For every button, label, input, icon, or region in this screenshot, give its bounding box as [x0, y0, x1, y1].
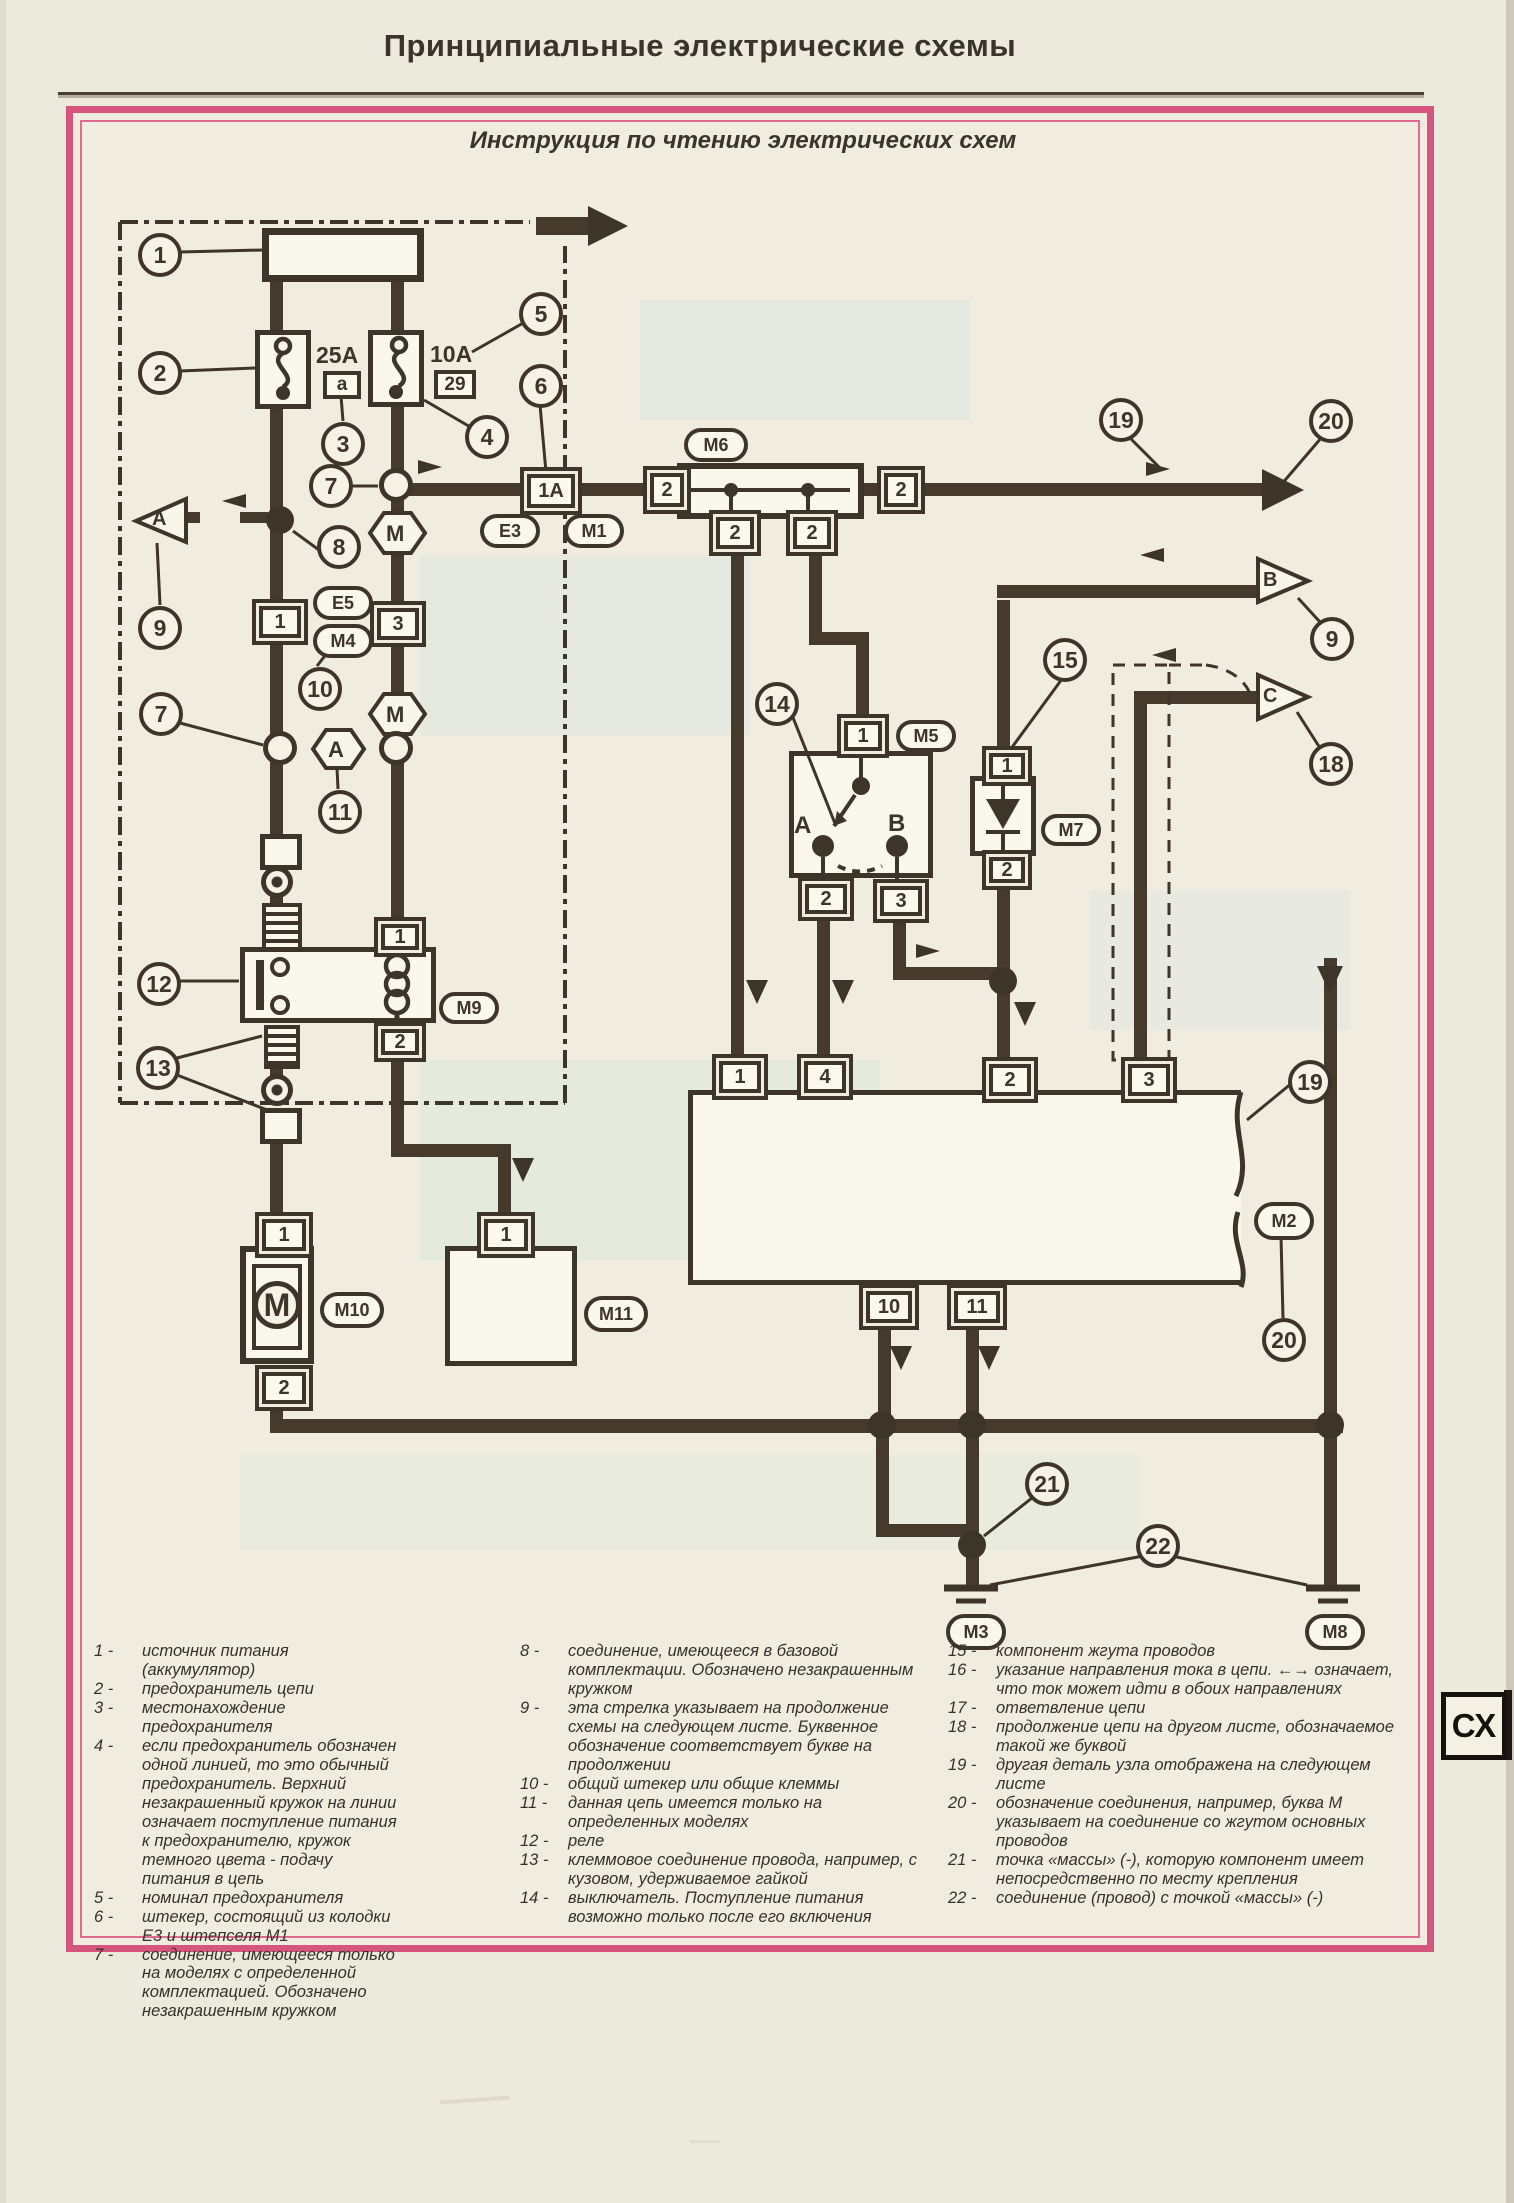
section-tab: СХ [1441, 1692, 1507, 1760]
legend-item: 7 - соединение, имеющееся только на моде… [94, 1946, 404, 2022]
legend-item-number: 5 - [94, 1889, 142, 1908]
legend-item: 15 - компонент жгута проводов [948, 1642, 1400, 1661]
legend-item-text: соединение (провод) с точкой «массы» (-) [996, 1889, 1400, 1908]
legend-item-number: 1 - [94, 1642, 142, 1680]
option-connection-ring [379, 468, 413, 502]
callout-6: 6 [519, 364, 563, 408]
torn-edge [1235, 1092, 1243, 1287]
legend-item-text: соединение, имеющееся в базовой комплект… [568, 1642, 932, 1699]
callout-8: 8 [317, 525, 361, 569]
connector-pin: 1 [262, 1219, 306, 1251]
callout-14: 14 [755, 682, 799, 726]
legend-item: 12 - реле [520, 1832, 932, 1851]
ground-icon [944, 1588, 1360, 1601]
connector-pin: 2 [989, 1064, 1031, 1096]
connector-pin: 1 [381, 924, 419, 950]
fuse-rating-label: 25A [316, 342, 358, 369]
legend-item: 8 - соединение, имеющееся в базовой комп… [520, 1642, 932, 1699]
connector-pin: 3 [1128, 1064, 1170, 1096]
connector-pin: 2 [989, 857, 1025, 883]
section-tab-bar [1504, 1690, 1512, 1760]
terminal-square [260, 834, 302, 870]
hexagon-letter: A [328, 737, 344, 763]
legend-item: 17 - ответвление цепи [948, 1699, 1400, 1718]
flow-arrow-down-icon [1317, 966, 1343, 994]
legend-item-text: эта стрелка указывает на продолжение схе… [568, 1699, 932, 1775]
continuation-letter: B [1263, 569, 1277, 592]
legend-item-text: другая деталь узла отображена на следующ… [996, 1756, 1400, 1794]
connector-label-m10: M10 [320, 1292, 384, 1328]
legend-item-text: ответвление цепи [996, 1699, 1400, 1718]
connector-label-m9: M9 [439, 992, 499, 1024]
legend-item: 9 - эта стрелка указывает на продолжение… [520, 1699, 932, 1775]
callout-4: 4 [465, 415, 509, 459]
legend-item-number: 18 - [948, 1718, 996, 1756]
flow-arrow-left-icon [1140, 548, 1164, 562]
switch-contact-letter: B [888, 810, 905, 838]
flow-arrow-down-icon [746, 980, 768, 1004]
connector-pin: 2 [381, 1029, 419, 1055]
connector-label-e3: E3 [480, 514, 540, 548]
legend-column-2: 8 - соединение, имеющееся в базовой комп… [520, 1642, 932, 1927]
legend-item-number: 21 - [948, 1851, 996, 1889]
legend-item-number: 8 - [520, 1642, 568, 1699]
terminal-square [260, 1108, 302, 1144]
legend-item-number: 4 - [94, 1737, 142, 1889]
connector-pin: 4 [804, 1061, 846, 1093]
legend-item-text: указание направления тока в цепи. ←→ озн… [996, 1661, 1400, 1699]
legend-item-text: штекер, состоящий из колодки Е3 и штепсе… [142, 1908, 404, 1946]
legend-item-number: 17 - [948, 1699, 996, 1718]
legend-item: 6 - штекер, состоящий из колодки Е3 и шт… [94, 1908, 404, 1946]
callout-19b: 19 [1288, 1060, 1332, 1104]
flow-arrow-down-icon [1014, 1002, 1036, 1026]
flow-arrow-right-icon [1146, 462, 1170, 476]
junction-dot [958, 1411, 986, 1439]
legend-item: 18 - продолжение цепи на другом листе, о… [948, 1718, 1400, 1756]
connector-pin: 2 [884, 473, 918, 507]
callout-9b: 9 [1310, 617, 1354, 661]
option-connection-ring [379, 731, 413, 765]
junction-dot [868, 1411, 896, 1439]
legend-item: 5 - номинал предохранителя [94, 1889, 404, 1908]
legend-item-text: предохранитель цепи [142, 1680, 404, 1699]
flow-arrow-right-icon [916, 944, 940, 958]
callout-2: 2 [138, 351, 182, 395]
callout-9: 9 [138, 606, 182, 650]
legend-item-text: обозначение соединения, например, буква … [996, 1794, 1400, 1851]
flow-arrow-down-icon [512, 1158, 534, 1182]
m6-internals [684, 483, 850, 515]
flow-arrow-right-icon [418, 460, 442, 474]
legend-item-number: 16 - [948, 1661, 996, 1699]
connector-pin: 1 [484, 1219, 528, 1251]
legend-item: 10 - общий штекер или общие клеммы [520, 1775, 932, 1794]
legend-item: 22 - соединение (провод) с точкой «массы… [948, 1889, 1400, 1908]
legend-item-text: компонент жгута проводов [996, 1642, 1400, 1661]
flow-arrow-left-icon [222, 494, 246, 508]
legend-item: 3 - местонахождение предохранителя [94, 1699, 404, 1737]
legend-item: 2 - предохранитель цепи [94, 1680, 404, 1699]
legend-item-number: 6 - [94, 1908, 142, 1946]
connector-pin: 1 [844, 721, 882, 751]
hexagon-letter: M [386, 702, 404, 728]
connector-label-m7: M7 [1041, 814, 1101, 846]
connector-pin: 2 [805, 884, 847, 914]
connector-label-m2: M2 [1254, 1202, 1314, 1240]
connector-label-e5: E5 [313, 586, 373, 620]
clamp-terminal [264, 1025, 300, 1069]
fuse-rating-label: 10A [430, 341, 472, 368]
legend-item: 4 - если предохранитель обозначен одной … [94, 1737, 404, 1889]
continuation-arrow-right-icon [588, 206, 628, 246]
dashed-continuation-box [1113, 665, 1252, 1060]
legend-item-number: 19 - [948, 1756, 996, 1794]
junction-dot-base [266, 506, 294, 534]
callout-20: 20 [1309, 399, 1353, 443]
legend-item-text: реле [568, 1832, 932, 1851]
legend-item-text: точка «массы» (-), которую компонент име… [996, 1851, 1400, 1889]
callout-20b: 20 [1262, 1318, 1306, 1362]
legend-item: 14 - выключатель. Поступление питания во… [520, 1889, 932, 1927]
callout-19: 19 [1099, 398, 1143, 442]
callout-12: 12 [137, 962, 181, 1006]
legend-item-text: клеммовое соединение провода, например, … [568, 1851, 932, 1889]
connector-pin: 11 [954, 1291, 1000, 1323]
connector-label-m5: M5 [896, 720, 956, 752]
legend-item-number: 3 - [94, 1699, 142, 1737]
legend-item-number: 12 - [520, 1832, 568, 1851]
ground-junction-dot [958, 1531, 986, 1559]
fuse-location-box: a [323, 371, 361, 399]
legend-column-3: 15 - компонент жгута проводов 16 - указа… [948, 1642, 1400, 1908]
legend-item: 1 - источник питания (аккумулятор) [94, 1642, 404, 1680]
connector-pin-1a: 1A [527, 474, 575, 508]
connector-pin: 3 [880, 886, 922, 916]
connector-pin: 2 [262, 1372, 306, 1404]
legend-item: 20 - обозначение соединения, например, б… [948, 1794, 1400, 1851]
connector-label-m4: M4 [313, 624, 373, 658]
legend-item-text: общий штекер или общие клеммы [568, 1775, 932, 1794]
diode-icon [986, 782, 1020, 852]
legend-item-text: выключатель. Поступление питания возможн… [568, 1889, 932, 1927]
legend-item-number: 7 - [94, 1946, 142, 2022]
fuse-location-box: 29 [434, 370, 476, 399]
connector-pin: 3 [377, 608, 419, 640]
connector-pin: 2 [650, 473, 684, 507]
sheet-continuation-arrowhead [1262, 469, 1304, 511]
callout-21: 21 [1025, 1462, 1069, 1506]
legend-item: 11 - данная цепь имеется только на опред… [520, 1794, 932, 1832]
callout-11: 11 [318, 790, 362, 834]
clamp-terminal [262, 903, 302, 951]
legend-item-number: 9 - [520, 1699, 568, 1775]
callout-3: 3 [321, 422, 365, 466]
legend-item-number: 13 - [520, 1851, 568, 1889]
callout-1: 1 [138, 233, 182, 277]
legend-item: 16 - указание направления тока в цепи. ←… [948, 1661, 1400, 1699]
legend-item-number: 14 - [520, 1889, 568, 1927]
connector-pin: 1 [989, 753, 1025, 779]
connector-pin: 2 [716, 517, 754, 549]
option-connection-ring [263, 731, 297, 765]
connector-label-m11: M11 [584, 1296, 648, 1332]
flow-arrow-down-icon [978, 1346, 1000, 1370]
legend-item: 21 - точка «массы» (-), которую компонен… [948, 1851, 1400, 1889]
legend-item-text: если предохранитель обозначен одной лини… [142, 1737, 404, 1889]
callout-7: 7 [309, 464, 353, 508]
manual-page: Принципиальные электрические схемы Инстр… [0, 0, 1514, 2203]
callout-13: 13 [136, 1046, 180, 1090]
legend-item: 19 - другая деталь узла отображена на сл… [948, 1756, 1400, 1794]
junction-dot [989, 967, 1017, 995]
connector-pin: 1 [259, 606, 301, 638]
flow-arrow-down-icon [890, 1346, 912, 1370]
legend-item-text: местонахождение предохранителя [142, 1699, 404, 1737]
connector-label-m1: M1 [564, 514, 624, 548]
connector-pin: 1 [719, 1061, 761, 1093]
connector-label-m6: M6 [684, 428, 748, 462]
terminal-eyelet [261, 1074, 293, 1106]
legend-item: 13 - клеммовое соединение провода, напри… [520, 1851, 932, 1889]
legend-item-number: 22 - [948, 1889, 996, 1908]
legend-item-text: источник питания (аккумулятор) [142, 1642, 404, 1680]
callout-10: 10 [298, 667, 342, 711]
callout-22: 22 [1136, 1524, 1180, 1568]
legend-item-number: 2 - [94, 1680, 142, 1699]
legend-item-number: 10 - [520, 1775, 568, 1794]
callout-15: 15 [1043, 638, 1087, 682]
flow-arrow-left-icon [1152, 648, 1176, 662]
connector-pin: 10 [866, 1291, 912, 1323]
callout-5: 5 [519, 292, 563, 336]
legend-item-text: данная цепь имеется только на определенн… [568, 1794, 932, 1832]
legend-item-text: продолжение цепи на другом листе, обозна… [996, 1718, 1400, 1756]
legend-item-text: соединение, имеющееся только на моделях … [142, 1946, 404, 2022]
relay-icon [260, 950, 408, 1026]
connector-pin: 2 [793, 517, 831, 549]
switch-contact-letter: A [794, 812, 811, 840]
continuation-letter: C [1263, 685, 1277, 708]
legend-item-text: номинал предохранителя [142, 1889, 404, 1908]
callout-7b: 7 [139, 692, 183, 736]
callout-18: 18 [1309, 742, 1353, 786]
legend-item-number: 20 - [948, 1794, 996, 1851]
hexagon-letter: M [386, 521, 404, 547]
terminal-eyelet [261, 866, 293, 898]
junction-dot [1316, 1411, 1344, 1439]
legend-column-1: 1 - источник питания (аккумулятор) 2 - п… [94, 1642, 404, 2021]
legend-item-number: 11 - [520, 1794, 568, 1832]
flow-arrow-down-icon [832, 980, 854, 1004]
legend-item-number: 15 - [948, 1642, 996, 1661]
continuation-letter: A [152, 508, 166, 531]
